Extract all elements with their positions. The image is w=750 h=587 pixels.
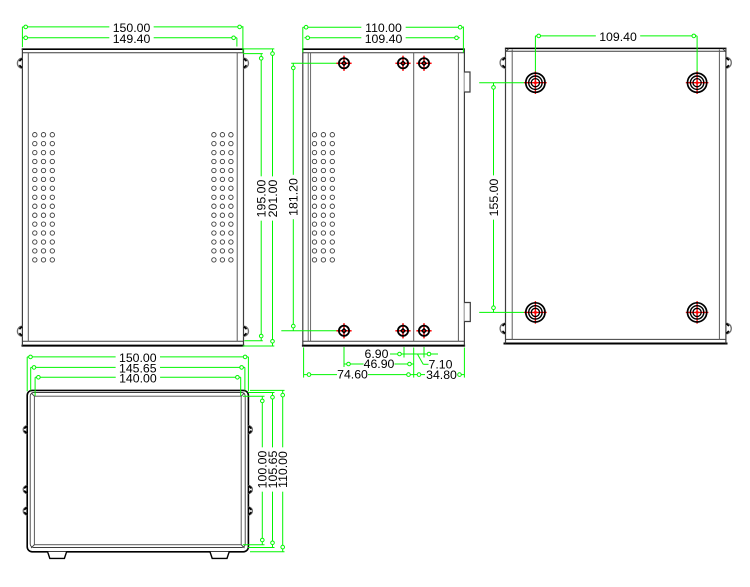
svg-text:34.80: 34.80	[426, 368, 457, 382]
svg-text:140.00: 140.00	[119, 371, 157, 385]
svg-text:149.40: 149.40	[113, 32, 151, 46]
svg-text:181.20: 181.20	[287, 178, 301, 216]
svg-text:109.40: 109.40	[599, 30, 637, 44]
svg-text:155.00: 155.00	[487, 179, 501, 217]
svg-text:110.00: 110.00	[276, 451, 290, 488]
svg-text:109.40: 109.40	[365, 32, 403, 46]
svg-text:74.60: 74.60	[337, 368, 368, 382]
svg-text:46.90: 46.90	[364, 357, 395, 371]
svg-text:201.00: 201.00	[266, 180, 280, 218]
